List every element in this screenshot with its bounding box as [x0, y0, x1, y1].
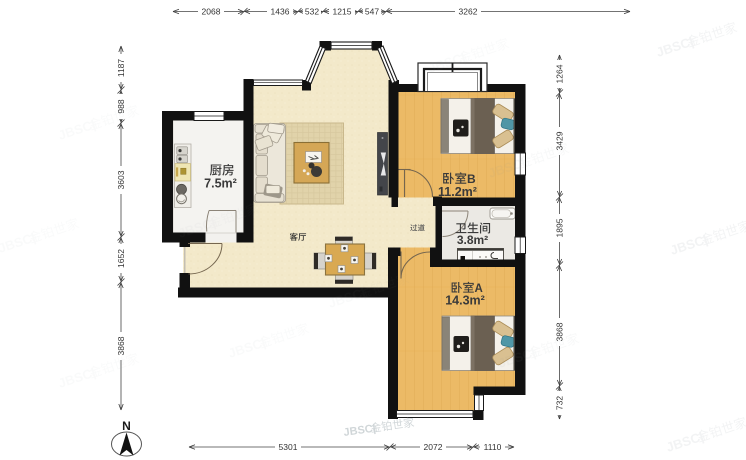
- svg-text:1264: 1264: [555, 64, 565, 83]
- svg-text:1436: 1436: [271, 7, 290, 17]
- svg-text:3262: 3262: [459, 7, 478, 17]
- svg-text:2068: 2068: [202, 7, 221, 17]
- svg-text:547: 547: [365, 7, 379, 17]
- svg-text:3868: 3868: [116, 336, 126, 355]
- svg-text:3.8m²: 3.8m²: [457, 233, 488, 247]
- svg-text:7.5m²: 7.5m²: [204, 177, 237, 191]
- svg-text:1652: 1652: [116, 249, 126, 268]
- svg-text:14.3m²: 14.3m²: [445, 294, 485, 308]
- svg-text:1895: 1895: [555, 218, 565, 237]
- svg-text:1215: 1215: [333, 7, 352, 17]
- svg-text:11.2m²: 11.2m²: [438, 185, 477, 199]
- svg-text:532: 532: [305, 7, 319, 17]
- svg-text:732: 732: [555, 396, 565, 410]
- svg-text:2072: 2072: [424, 442, 443, 452]
- svg-text:3603: 3603: [116, 170, 126, 189]
- svg-text:1187: 1187: [116, 59, 126, 78]
- svg-text:1110: 1110: [484, 442, 502, 452]
- svg-text:N: N: [122, 419, 131, 433]
- svg-text:B: B: [467, 172, 476, 186]
- svg-text:3868: 3868: [555, 322, 565, 341]
- svg-text:5301: 5301: [279, 442, 298, 452]
